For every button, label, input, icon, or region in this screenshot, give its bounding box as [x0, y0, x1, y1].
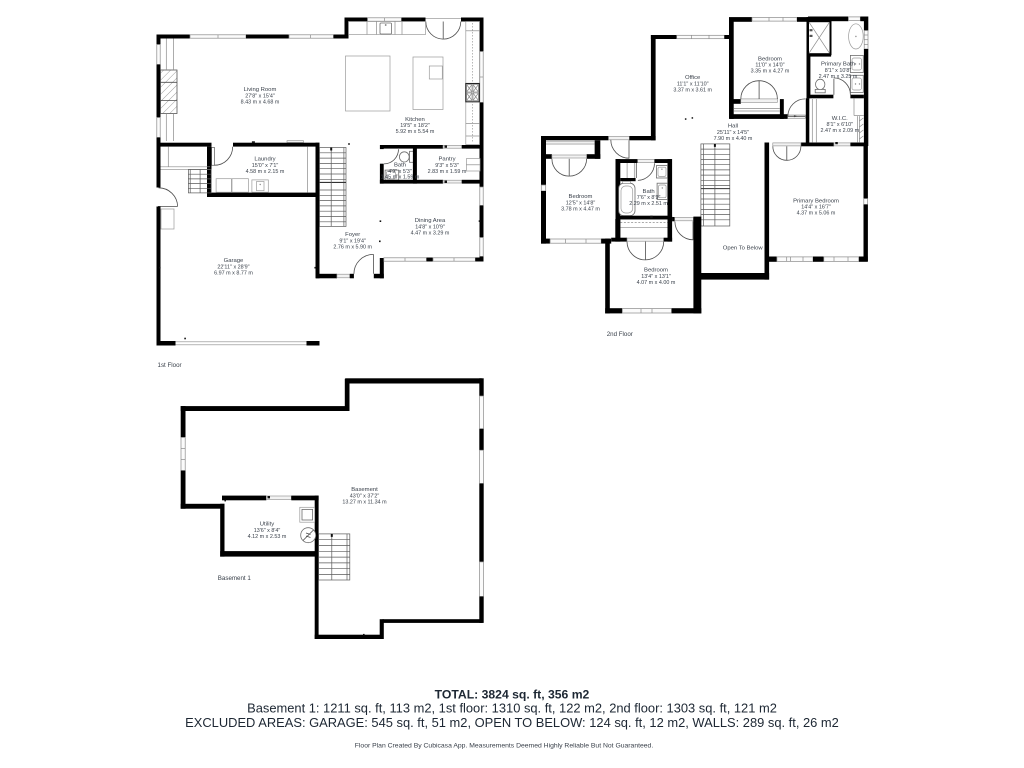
- svg-text:TOTAL: 3824 sq. ft, 356 m2: TOTAL: 3824 sq. ft, 356 m2: [435, 688, 590, 702]
- svg-text:2.76 m x 5.90 m: 2.76 m x 5.90 m: [333, 244, 372, 250]
- svg-text:Dining Area: Dining Area: [415, 218, 446, 224]
- svg-text:Living Room: Living Room: [244, 87, 277, 93]
- svg-text:2.47 m x 2.09 m: 2.47 m x 2.09 m: [820, 128, 859, 134]
- svg-text:Bedroom: Bedroom: [569, 194, 593, 200]
- svg-text:Bedroom: Bedroom: [758, 56, 782, 62]
- svg-text:3.37 m x 3.61 m: 3.37 m x 3.61 m: [673, 87, 712, 93]
- svg-text:Foyer: Foyer: [345, 232, 360, 238]
- svg-text:Bath: Bath: [394, 162, 406, 168]
- svg-text:Basement 1: Basement 1: [218, 575, 252, 582]
- svg-text:4.47 m x 3.29 m: 4.47 m x 3.29 m: [411, 230, 450, 236]
- svg-text:Bath: Bath: [643, 189, 655, 195]
- svg-text:2.83 m x 1.59 m: 2.83 m x 1.59 m: [428, 169, 467, 175]
- svg-text:3.78 m x 4.47 m: 3.78 m x 4.47 m: [561, 206, 600, 212]
- svg-text:Primary Bedroom: Primary Bedroom: [793, 198, 839, 204]
- svg-text:EXCLUDED AREAS: GARAGE: 545 sq: EXCLUDED AREAS: GARAGE: 545 sq. ft, 51 m…: [185, 715, 839, 730]
- svg-text:W.I.C.: W.I.C.: [832, 116, 848, 122]
- svg-text:6.97 m x 8.77 m: 6.97 m x 8.77 m: [214, 271, 253, 277]
- svg-text:4.12 m x 2.53 m: 4.12 m x 2.53 m: [248, 534, 287, 540]
- svg-text:Laundry: Laundry: [254, 157, 275, 163]
- svg-text:4.07 m x 4.00 m: 4.07 m x 4.00 m: [637, 280, 676, 286]
- svg-text:5.92 m x 5.54 m: 5.92 m x 5.54 m: [396, 129, 435, 135]
- svg-text:13.27 m x 11.34 m: 13.27 m x 11.34 m: [342, 500, 387, 506]
- svg-text:Kitchen: Kitchen: [405, 117, 425, 123]
- svg-text:4.58 m x 2.15 m: 4.58 m x 2.15 m: [246, 169, 285, 175]
- svg-text:Primary Bath: Primary Bath: [821, 62, 855, 68]
- svg-text:Utility: Utility: [260, 522, 274, 528]
- svg-text:2nd Floor: 2nd Floor: [607, 331, 633, 338]
- svg-text:8.43 m x 4.68 m: 8.43 m x 4.68 m: [241, 99, 280, 105]
- svg-text:2.47 m x 3.25 m: 2.47 m x 3.25 m: [819, 74, 858, 80]
- svg-text:4.37 m x 5.06 m: 4.37 m x 5.06 m: [797, 211, 836, 217]
- svg-text:Basement: Basement: [351, 487, 378, 493]
- svg-text:Hall: Hall: [728, 124, 738, 130]
- svg-text:7.90 m x 4.40 m: 7.90 m x 4.40 m: [714, 136, 753, 142]
- svg-text:Garage: Garage: [224, 258, 244, 264]
- svg-text:Basement 1: 1211 sq. ft, 113 m: Basement 1: 1211 sq. ft, 113 m2, 1st flo…: [247, 701, 777, 716]
- svg-text:Pantry: Pantry: [438, 157, 455, 163]
- svg-text:Bedroom: Bedroom: [644, 268, 668, 274]
- svg-text:2.29 m x 2.51 m: 2.29 m x 2.51 m: [629, 201, 668, 207]
- svg-text:3.35 m x 4.27 m: 3.35 m x 4.27 m: [751, 69, 790, 75]
- svg-text:Open To Below: Open To Below: [723, 246, 764, 252]
- svg-text:1st Floor: 1st Floor: [158, 362, 182, 369]
- svg-text:Floor Plan Created By Cubicasa: Floor Plan Created By Cubicasa App. Meas…: [355, 742, 654, 749]
- svg-text:Office: Office: [685, 75, 701, 81]
